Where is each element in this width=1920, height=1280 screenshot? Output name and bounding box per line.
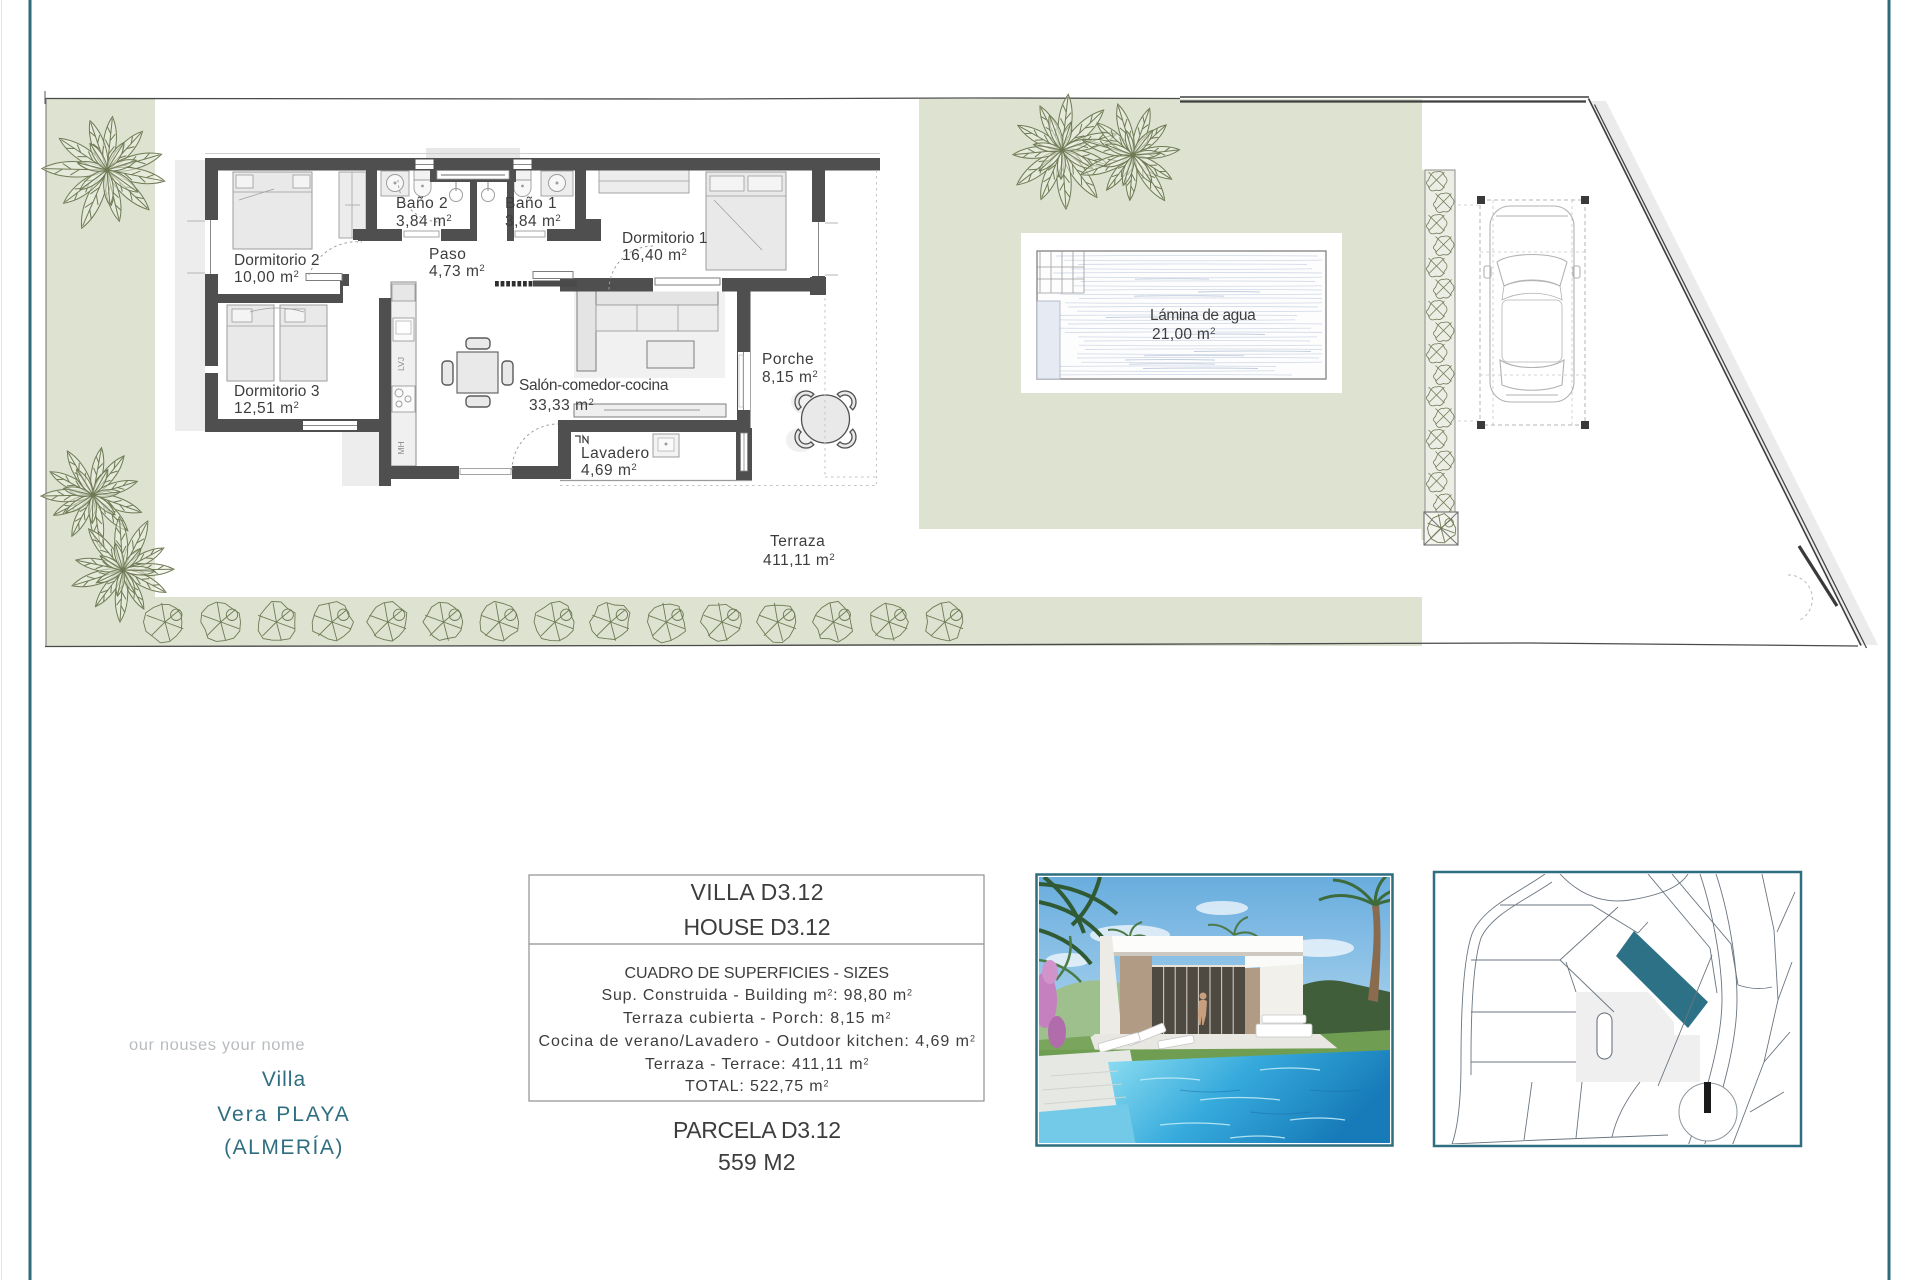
svg-text:MH: MH (396, 441, 406, 454)
svg-text:HOUSE D3.12: HOUSE D3.12 (684, 914, 831, 940)
svg-text:VILLA D3.12: VILLA D3.12 (691, 879, 824, 905)
svg-text:Salón-comedor-cocina: Salón-comedor-cocina (519, 377, 669, 394)
svg-text:411,11 m2: 411,11 m2 (763, 552, 835, 569)
svg-text:Terraza cubierta - Porch: 8,1: Terraza cubierta - Porch: 8,15 m2 (623, 1010, 891, 1027)
svg-text:TOTAL: 522,75 m2: TOTAL: 522,75 m2 (685, 1078, 829, 1095)
svg-text:4,69 m2: 4,69 m2 (581, 462, 637, 479)
svg-text:Terraza: Terraza (770, 533, 825, 550)
svg-text:3,84 m2: 3,84 m2 (505, 213, 561, 230)
svg-text:16,40 m2: 16,40 m2 (622, 247, 687, 264)
svg-text:Lámina de agua: Lámina de agua (1150, 307, 1256, 324)
svg-text:CUADRO DE SUPERFICIES - SIZES: CUADRO DE SUPERFICIES - SIZES (625, 965, 890, 982)
svg-text:33,33 m2: 33,33 m2 (529, 397, 594, 414)
svg-text:PARCELA D3.12: PARCELA D3.12 (673, 1117, 841, 1143)
svg-text:10,00 m2: 10,00 m2 (234, 269, 299, 286)
svg-text:Dormitorio 2: Dormitorio 2 (234, 252, 320, 269)
svg-text:(ALMERÍA): (ALMERÍA) (224, 1136, 344, 1159)
svg-text:3,84 m2: 3,84 m2 (396, 213, 452, 230)
svg-text:Dormitorio 1: Dormitorio 1 (622, 230, 708, 247)
svg-text:Dormitorio 3: Dormitorio 3 (234, 383, 320, 400)
svg-text:4,73 m2: 4,73 m2 (429, 263, 485, 280)
svg-text:Lavadero: Lavadero (581, 445, 650, 462)
svg-text:Baño 1: Baño 1 (505, 195, 557, 212)
svg-text:21,00 m2: 21,00 m2 (1152, 326, 1216, 343)
svg-text:12,51 m2: 12,51 m2 (234, 400, 299, 417)
svg-text:Porche: Porche (762, 351, 814, 368)
svg-text:Vera PLAYA: Vera PLAYA (217, 1103, 351, 1126)
svg-text:Villa: Villa (262, 1068, 306, 1091)
svg-text:LVJ: LVJ (396, 357, 406, 371)
svg-text:Sup. Construida - Building m2: Sup. Construida - Building m2: 98,80 m2 (602, 987, 913, 1004)
svg-text:Paso: Paso (429, 246, 466, 263)
svg-text:Baño 2: Baño 2 (396, 195, 448, 212)
svg-text:Cocina de verano/Lavadero - O: Cocina de verano/Lavadero - Outdoor kitc… (539, 1033, 976, 1050)
svg-text:Terraza - Terrace: 411,11 m2: Terraza - Terrace: 411,11 m2 (645, 1056, 869, 1073)
svg-text:8,15 m2: 8,15 m2 (762, 369, 818, 386)
svg-text:559 M2: 559 M2 (718, 1149, 796, 1175)
